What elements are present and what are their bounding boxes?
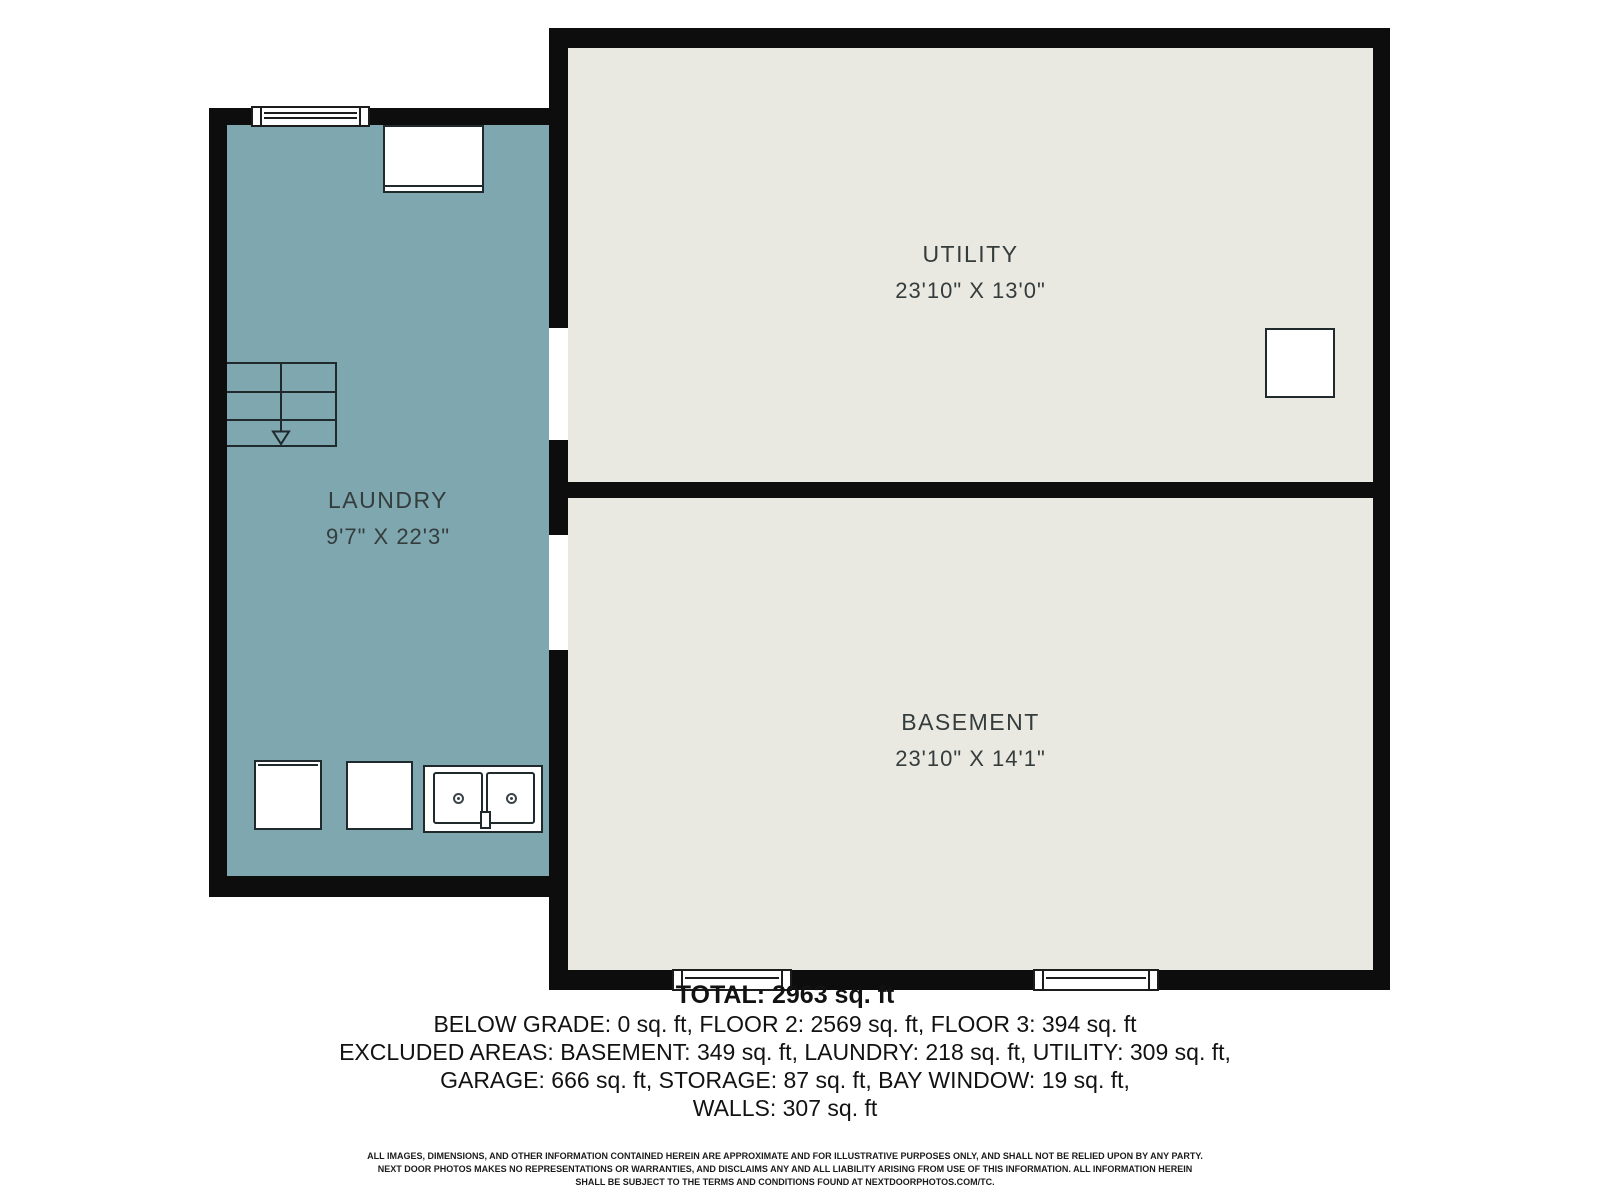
utility-fixture-box bbox=[1265, 328, 1335, 398]
room-name: BASEMENT bbox=[568, 709, 1373, 736]
laundry-left-wall bbox=[209, 108, 227, 897]
room-dims: 9'7" X 22'3" bbox=[227, 524, 549, 550]
washer-box bbox=[254, 760, 322, 830]
area-summary: TOTAL: 2963 sq. ft BELOW GRADE: 0 sq. ft… bbox=[0, 980, 1570, 1189]
room-name: UTILITY bbox=[568, 241, 1373, 268]
appliance-box-top bbox=[383, 125, 484, 193]
utility-top-wall bbox=[549, 28, 1390, 48]
sink-drain-left bbox=[453, 793, 464, 804]
summary-line-garage: GARAGE: 666 sq. ft, STORAGE: 87 sq. ft, … bbox=[0, 1066, 1570, 1094]
sink-basin-left bbox=[433, 772, 483, 824]
sink-basin-right bbox=[486, 772, 535, 824]
laundry-label: LAUNDRY 9'7" X 22'3" bbox=[227, 487, 549, 550]
disclaimer-line: SHALL BE SUBJECT TO THE TERMS AND CONDIT… bbox=[0, 1176, 1570, 1189]
window-pane-line bbox=[685, 977, 779, 979]
basement-label: BASEMENT 23'10" X 14'1" bbox=[568, 709, 1373, 772]
utility-label: UTILITY 23'10" X 13'0" bbox=[568, 241, 1373, 304]
summary-total: TOTAL: 2963 sq. ft bbox=[0, 980, 1570, 1010]
double-sink bbox=[423, 765, 543, 833]
appliance-detail-line bbox=[385, 185, 482, 187]
door-opening-basement bbox=[549, 535, 568, 650]
stairs-down-arrow-icon bbox=[271, 430, 291, 446]
floor-plan-page: LAUNDRY 9'7" X 22'3" UTILITY 23'10" X 13… bbox=[0, 0, 1600, 1200]
disclaimer: ALL IMAGES, DIMENSIONS, AND OTHER INFORM… bbox=[0, 1150, 1570, 1189]
washer-lid-line bbox=[258, 764, 318, 766]
summary-line-walls: WALLS: 307 sq. ft bbox=[0, 1094, 1570, 1122]
room-dims: 23'10" X 13'0" bbox=[568, 278, 1373, 304]
faucet bbox=[480, 811, 491, 829]
window-pane-line bbox=[264, 112, 357, 114]
room-dims: 23'10" X 14'1" bbox=[568, 746, 1373, 772]
dryer-box bbox=[346, 761, 413, 830]
laundry-window bbox=[251, 106, 370, 127]
sink-drain-right bbox=[506, 793, 517, 804]
summary-line-excluded: EXCLUDED AREAS: BASEMENT: 349 sq. ft, LA… bbox=[0, 1038, 1570, 1066]
stairs bbox=[227, 362, 337, 447]
door-opening-utility bbox=[549, 328, 568, 440]
window-frame-line bbox=[260, 108, 262, 125]
utility-basement-divider-wall bbox=[549, 482, 1390, 498]
shared-vertical-wall bbox=[549, 28, 568, 990]
right-wall bbox=[1373, 28, 1390, 990]
window-frame-line bbox=[359, 108, 361, 125]
stairs-center-line bbox=[280, 364, 282, 434]
window-pane-line bbox=[264, 117, 357, 119]
laundry-bottom-wall bbox=[209, 876, 568, 897]
disclaimer-line: ALL IMAGES, DIMENSIONS, AND OTHER INFORM… bbox=[0, 1150, 1570, 1163]
summary-line-grade: BELOW GRADE: 0 sq. ft, FLOOR 2: 2569 sq.… bbox=[0, 1010, 1570, 1038]
room-name: LAUNDRY bbox=[227, 487, 549, 514]
window-pane-line bbox=[1046, 977, 1146, 979]
disclaimer-line: NEXT DOOR PHOTOS MAKES NO REPRESENTATION… bbox=[0, 1163, 1570, 1176]
